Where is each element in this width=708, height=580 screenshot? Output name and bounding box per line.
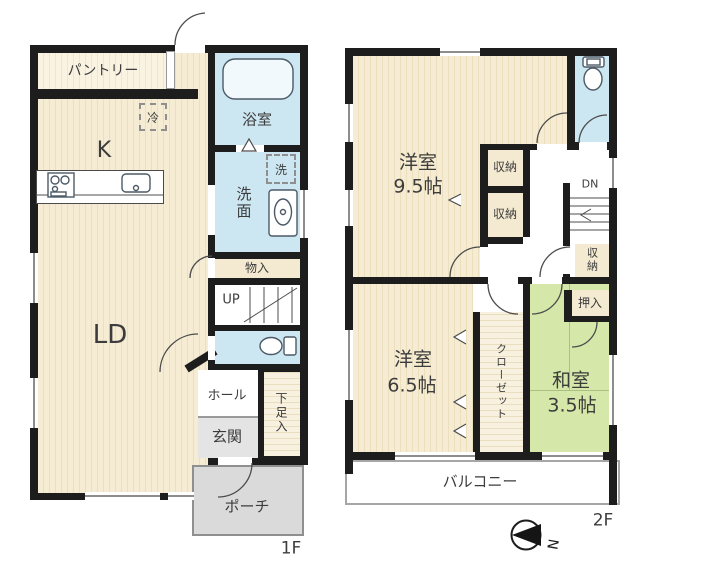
balcony-post [345, 460, 353, 474]
oshiire-label: 押入 [578, 297, 602, 309]
western-65-nook-gap [473, 284, 480, 312]
storage-c-label: 収納 [587, 247, 598, 273]
western-65-name: 洋室 [394, 351, 432, 370]
western-95-name: 洋室 [399, 154, 437, 173]
balcony-label: バルコニー [443, 475, 518, 490]
floorplan-canvas: 冷 洗 パントリー K 浴室 洗面 物入 UP LD [0, 0, 708, 580]
balcony-post [609, 460, 617, 505]
window [345, 330, 353, 400]
western-65-size: 6.5帖 [387, 377, 436, 396]
stairs-down-area [570, 190, 609, 238]
window [609, 355, 617, 425]
western-95-door-gap [537, 144, 567, 150]
storage-b-label: 収納 [493, 208, 517, 220]
stairs-down-label: DN [582, 179, 599, 190]
storage-a-label: 収納 [493, 161, 517, 173]
window [542, 452, 603, 460]
floor2-plan: 洋室 9.5帖 収納 収納 DN 収納 押入 洋室 6.5帖 クローゼット 和室… [0, 0, 708, 580]
toilet-2f-door-gap [579, 142, 607, 150]
f2-wall [564, 316, 609, 322]
window [345, 104, 353, 142]
window [395, 452, 475, 460]
western-65-door-gap [488, 277, 518, 284]
f2-wall [523, 150, 530, 237]
western-95-size: 9.5帖 [393, 178, 442, 197]
japanese-room-door-gap [532, 277, 562, 284]
window [609, 158, 617, 188]
floor2-label: 2F [593, 513, 614, 530]
window [440, 48, 480, 56]
f2-wall [564, 290, 572, 316]
room-western-95-upper [353, 56, 567, 144]
window [345, 190, 353, 226]
f2-wall [488, 186, 523, 193]
storage-c-door-gap [563, 246, 570, 274]
room-toilet-2f [575, 56, 609, 142]
japanese-room-name: 和室 [552, 372, 590, 391]
japanese-room-size: 3.5帖 [547, 397, 596, 416]
closet-label: クローゼット [496, 343, 507, 421]
f2-wall [488, 237, 523, 244]
western-95-door-gap-lower [480, 247, 488, 277]
